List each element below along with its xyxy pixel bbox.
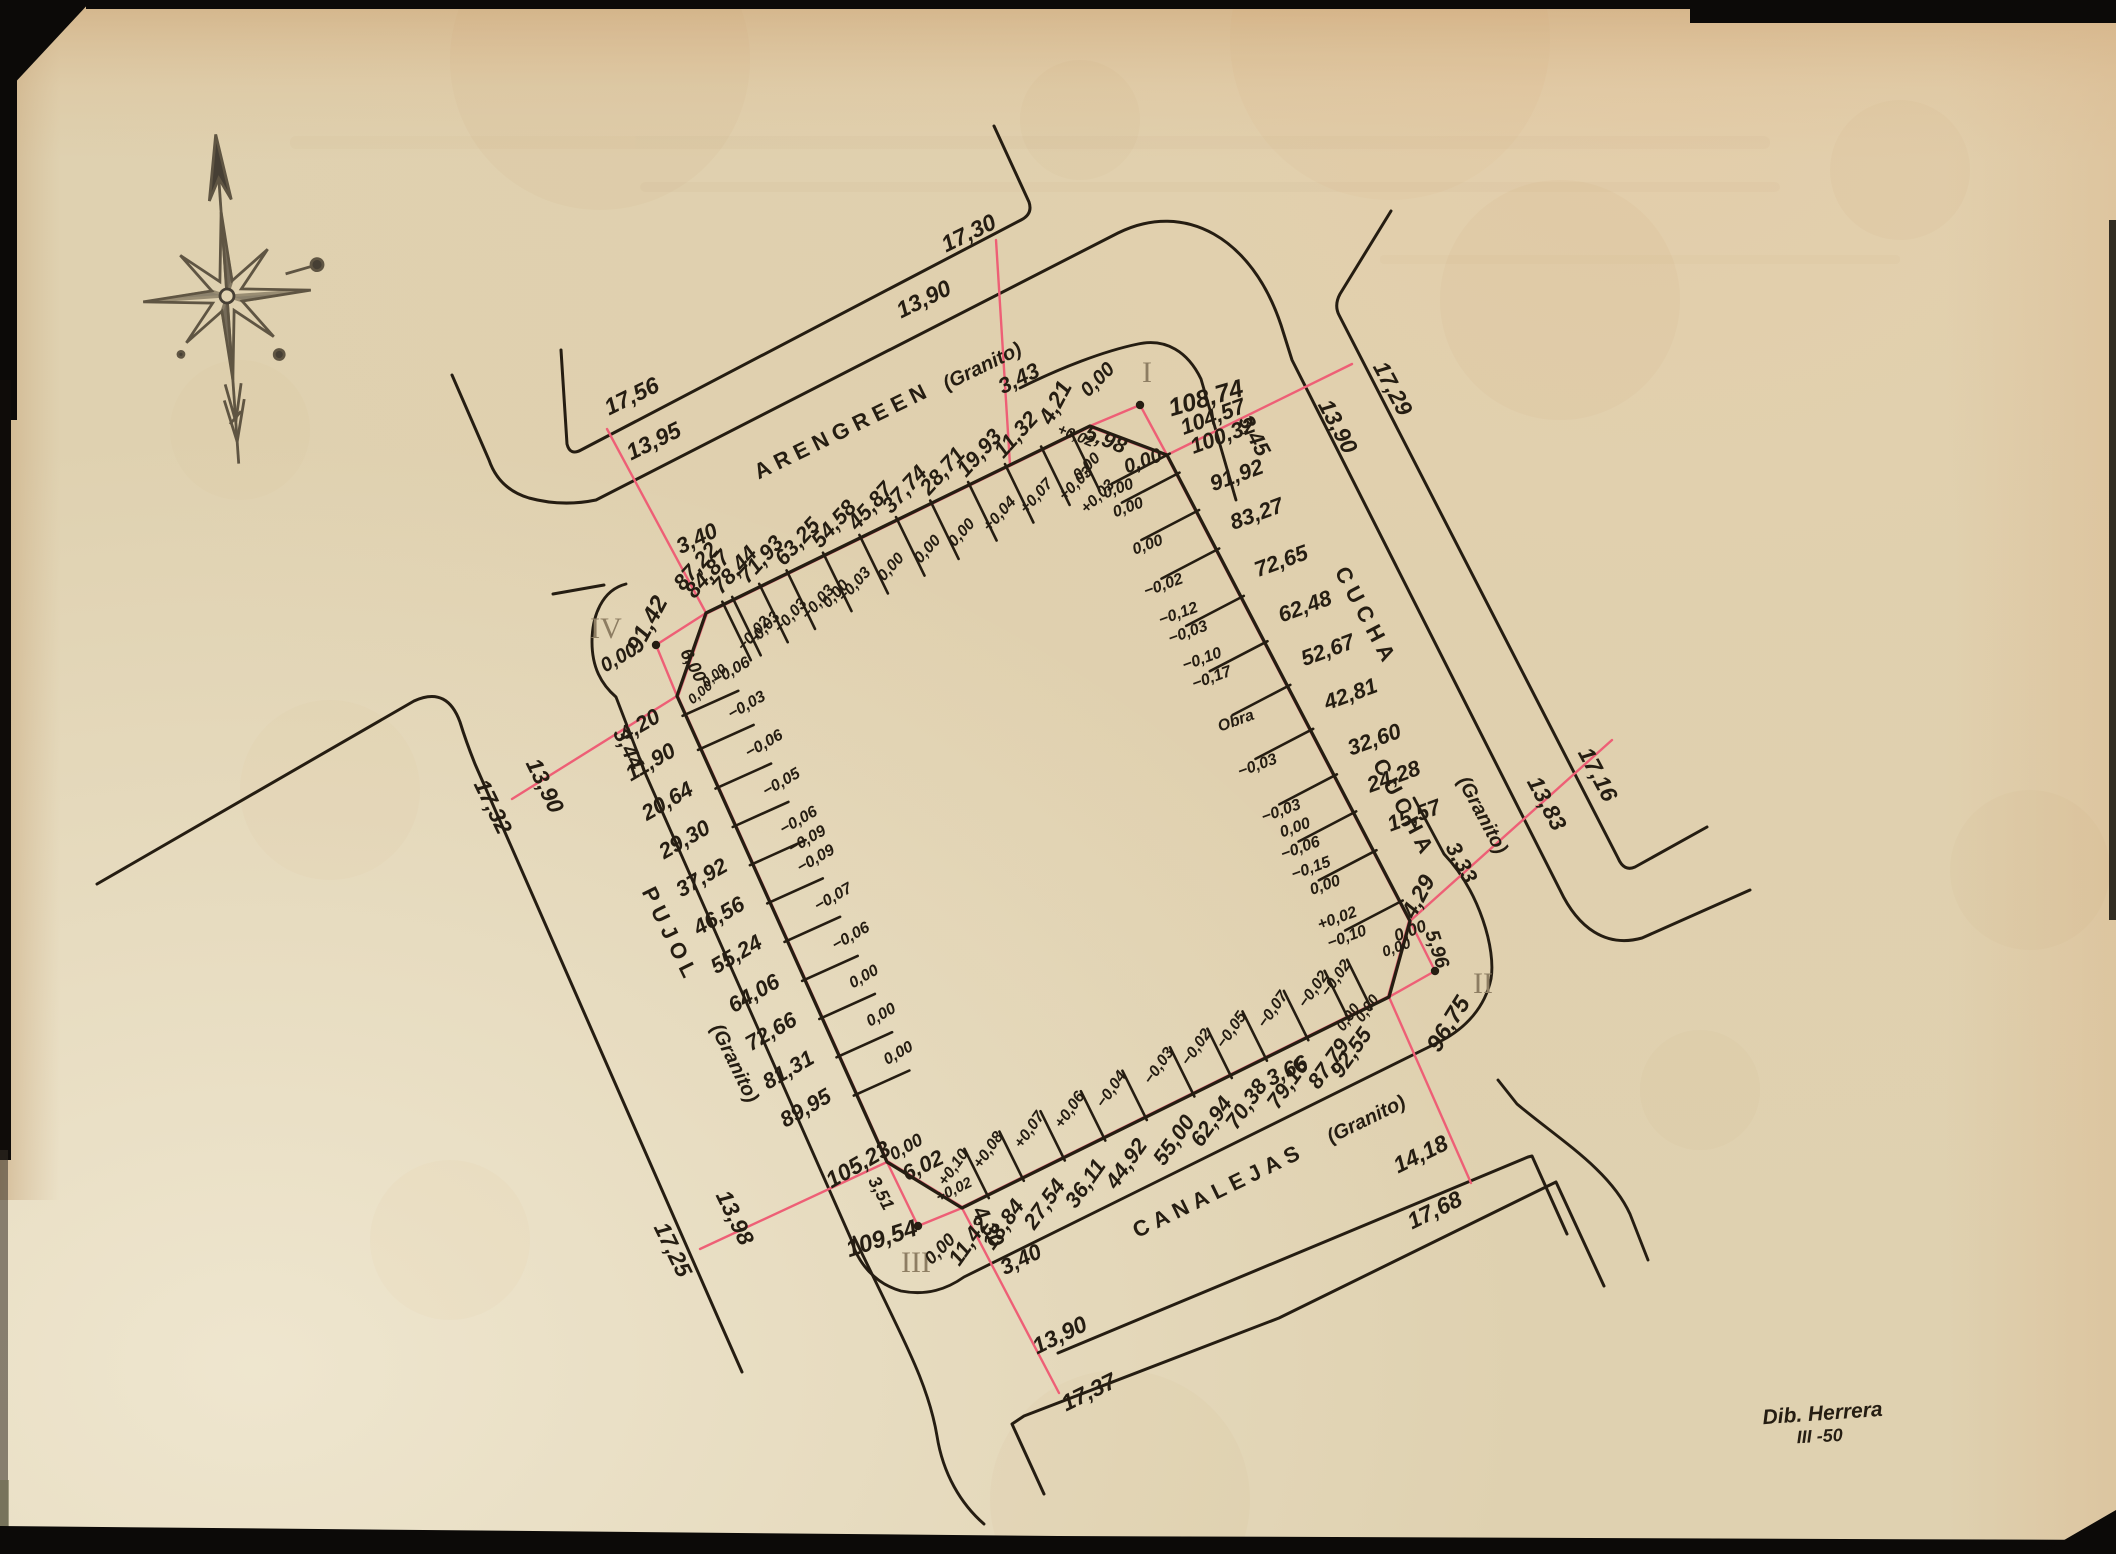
svg-text:III -50: III -50 — [1796, 1425, 1843, 1447]
svg-text:I: I — [1142, 356, 1152, 389]
svg-text:II: II — [1473, 967, 1493, 1000]
svg-text:IV: IV — [590, 612, 622, 645]
